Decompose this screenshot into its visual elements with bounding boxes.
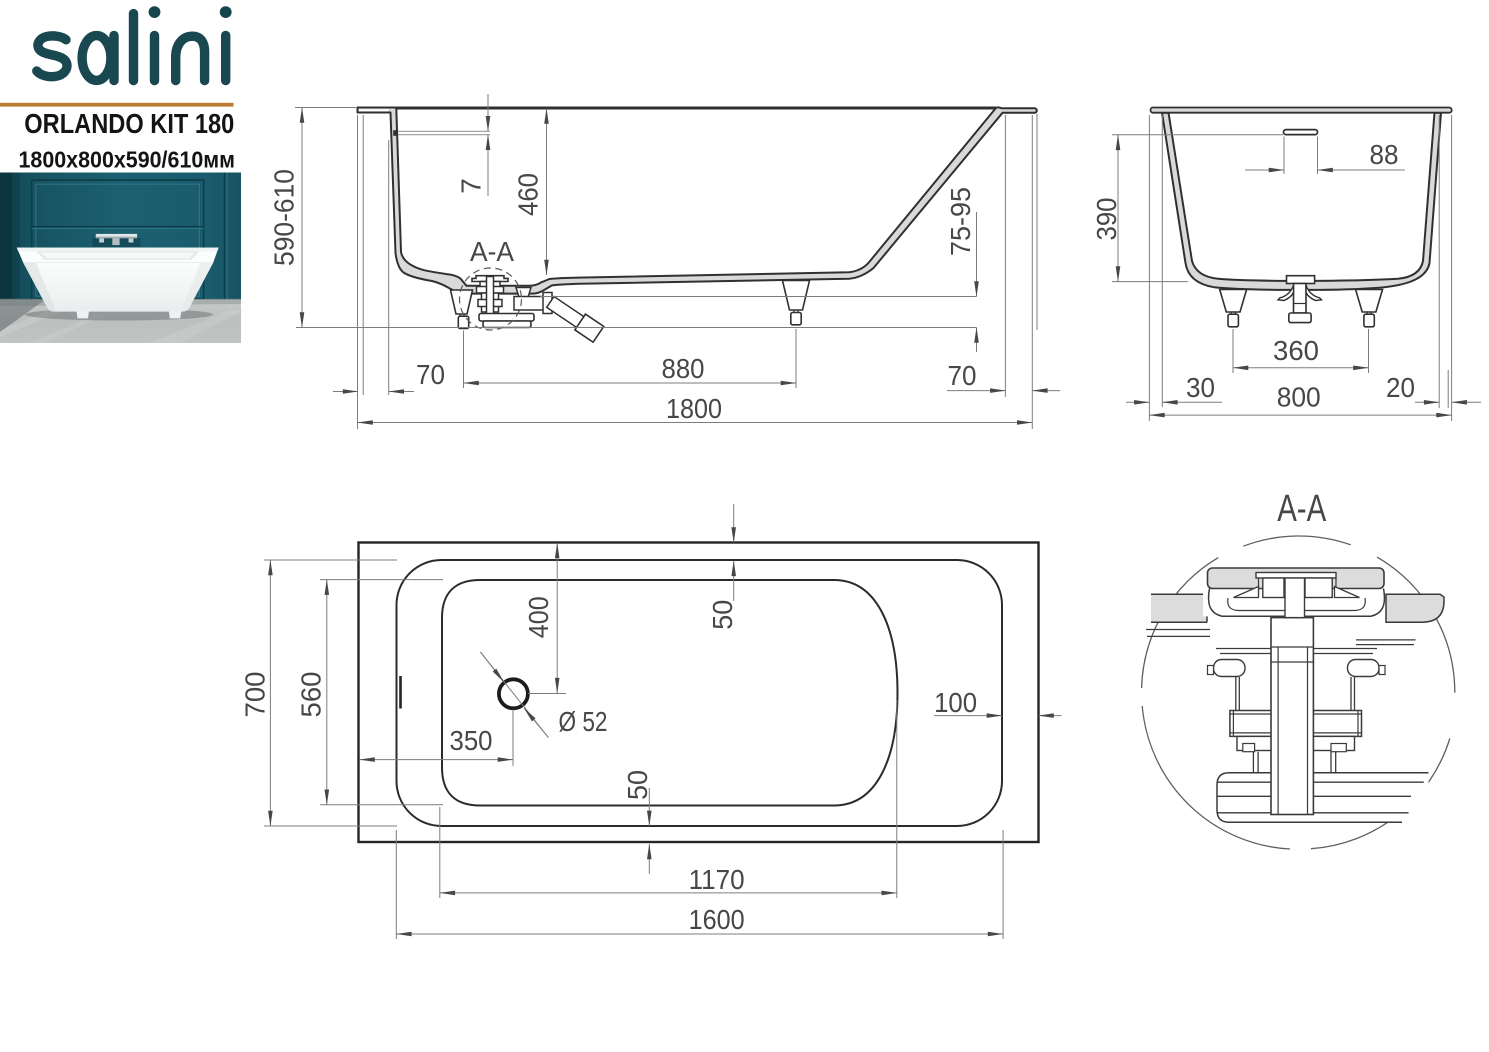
svg-text:460: 460 xyxy=(513,173,544,216)
svg-text:1800x800x590/610мм: 1800x800x590/610мм xyxy=(19,146,236,172)
svg-text:Ø 52: Ø 52 xyxy=(559,706,608,737)
svg-text:A-A: A-A xyxy=(1277,488,1326,530)
svg-text:590-610: 590-610 xyxy=(269,169,300,266)
svg-text:30: 30 xyxy=(1186,372,1215,403)
svg-text:1170: 1170 xyxy=(689,864,745,895)
svg-text:800: 800 xyxy=(1277,382,1321,413)
svg-text:390: 390 xyxy=(1091,198,1122,241)
svg-text:50: 50 xyxy=(707,600,738,630)
svg-text:70: 70 xyxy=(416,359,445,390)
svg-text:75-95: 75-95 xyxy=(945,187,976,256)
svg-text:700: 700 xyxy=(240,672,271,718)
svg-text:7: 7 xyxy=(456,178,487,194)
svg-text:400: 400 xyxy=(523,596,554,638)
svg-text:560: 560 xyxy=(296,672,327,718)
svg-text:880: 880 xyxy=(662,353,705,384)
svg-text:1800: 1800 xyxy=(666,393,722,424)
svg-text:20: 20 xyxy=(1386,372,1415,403)
svg-text:50: 50 xyxy=(622,770,653,800)
svg-text:100: 100 xyxy=(934,687,977,718)
svg-text:70: 70 xyxy=(948,360,977,391)
svg-text:A-A: A-A xyxy=(470,236,514,267)
svg-text:ORLANDO KIT 180: ORLANDO KIT 180 xyxy=(24,108,234,139)
svg-text:350: 350 xyxy=(450,725,493,756)
svg-text:88: 88 xyxy=(1370,139,1399,170)
svg-text:1600: 1600 xyxy=(689,904,745,935)
svg-text:360: 360 xyxy=(1273,335,1319,366)
